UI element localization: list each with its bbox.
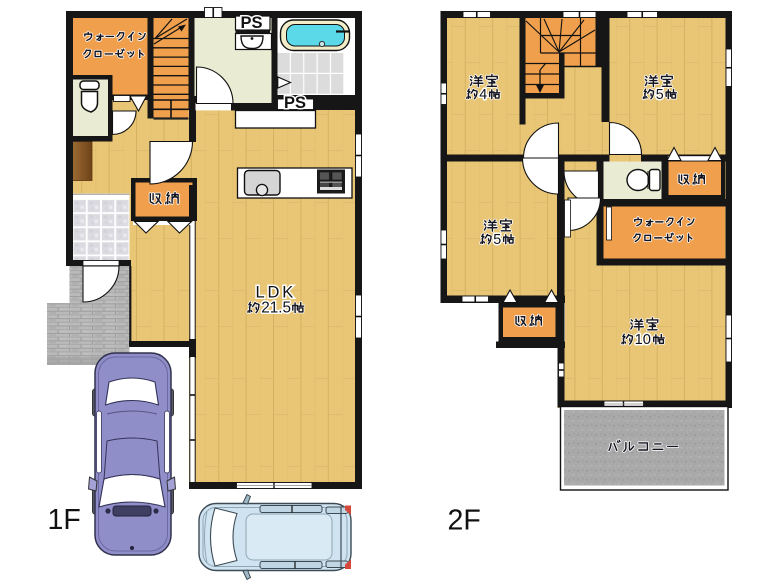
svg-text:21.5: 21.5	[261, 300, 291, 317]
svg-text:4: 4	[479, 87, 487, 103]
svg-text:1F: 1F	[48, 504, 81, 536]
svg-text:5: 5	[493, 232, 501, 248]
svg-text:10: 10	[635, 332, 651, 348]
svg-text:PS: PS	[241, 14, 263, 32]
svg-text:PS: PS	[284, 94, 306, 112]
svg-text:2F: 2F	[448, 505, 481, 537]
svg-text:5: 5	[656, 87, 664, 103]
